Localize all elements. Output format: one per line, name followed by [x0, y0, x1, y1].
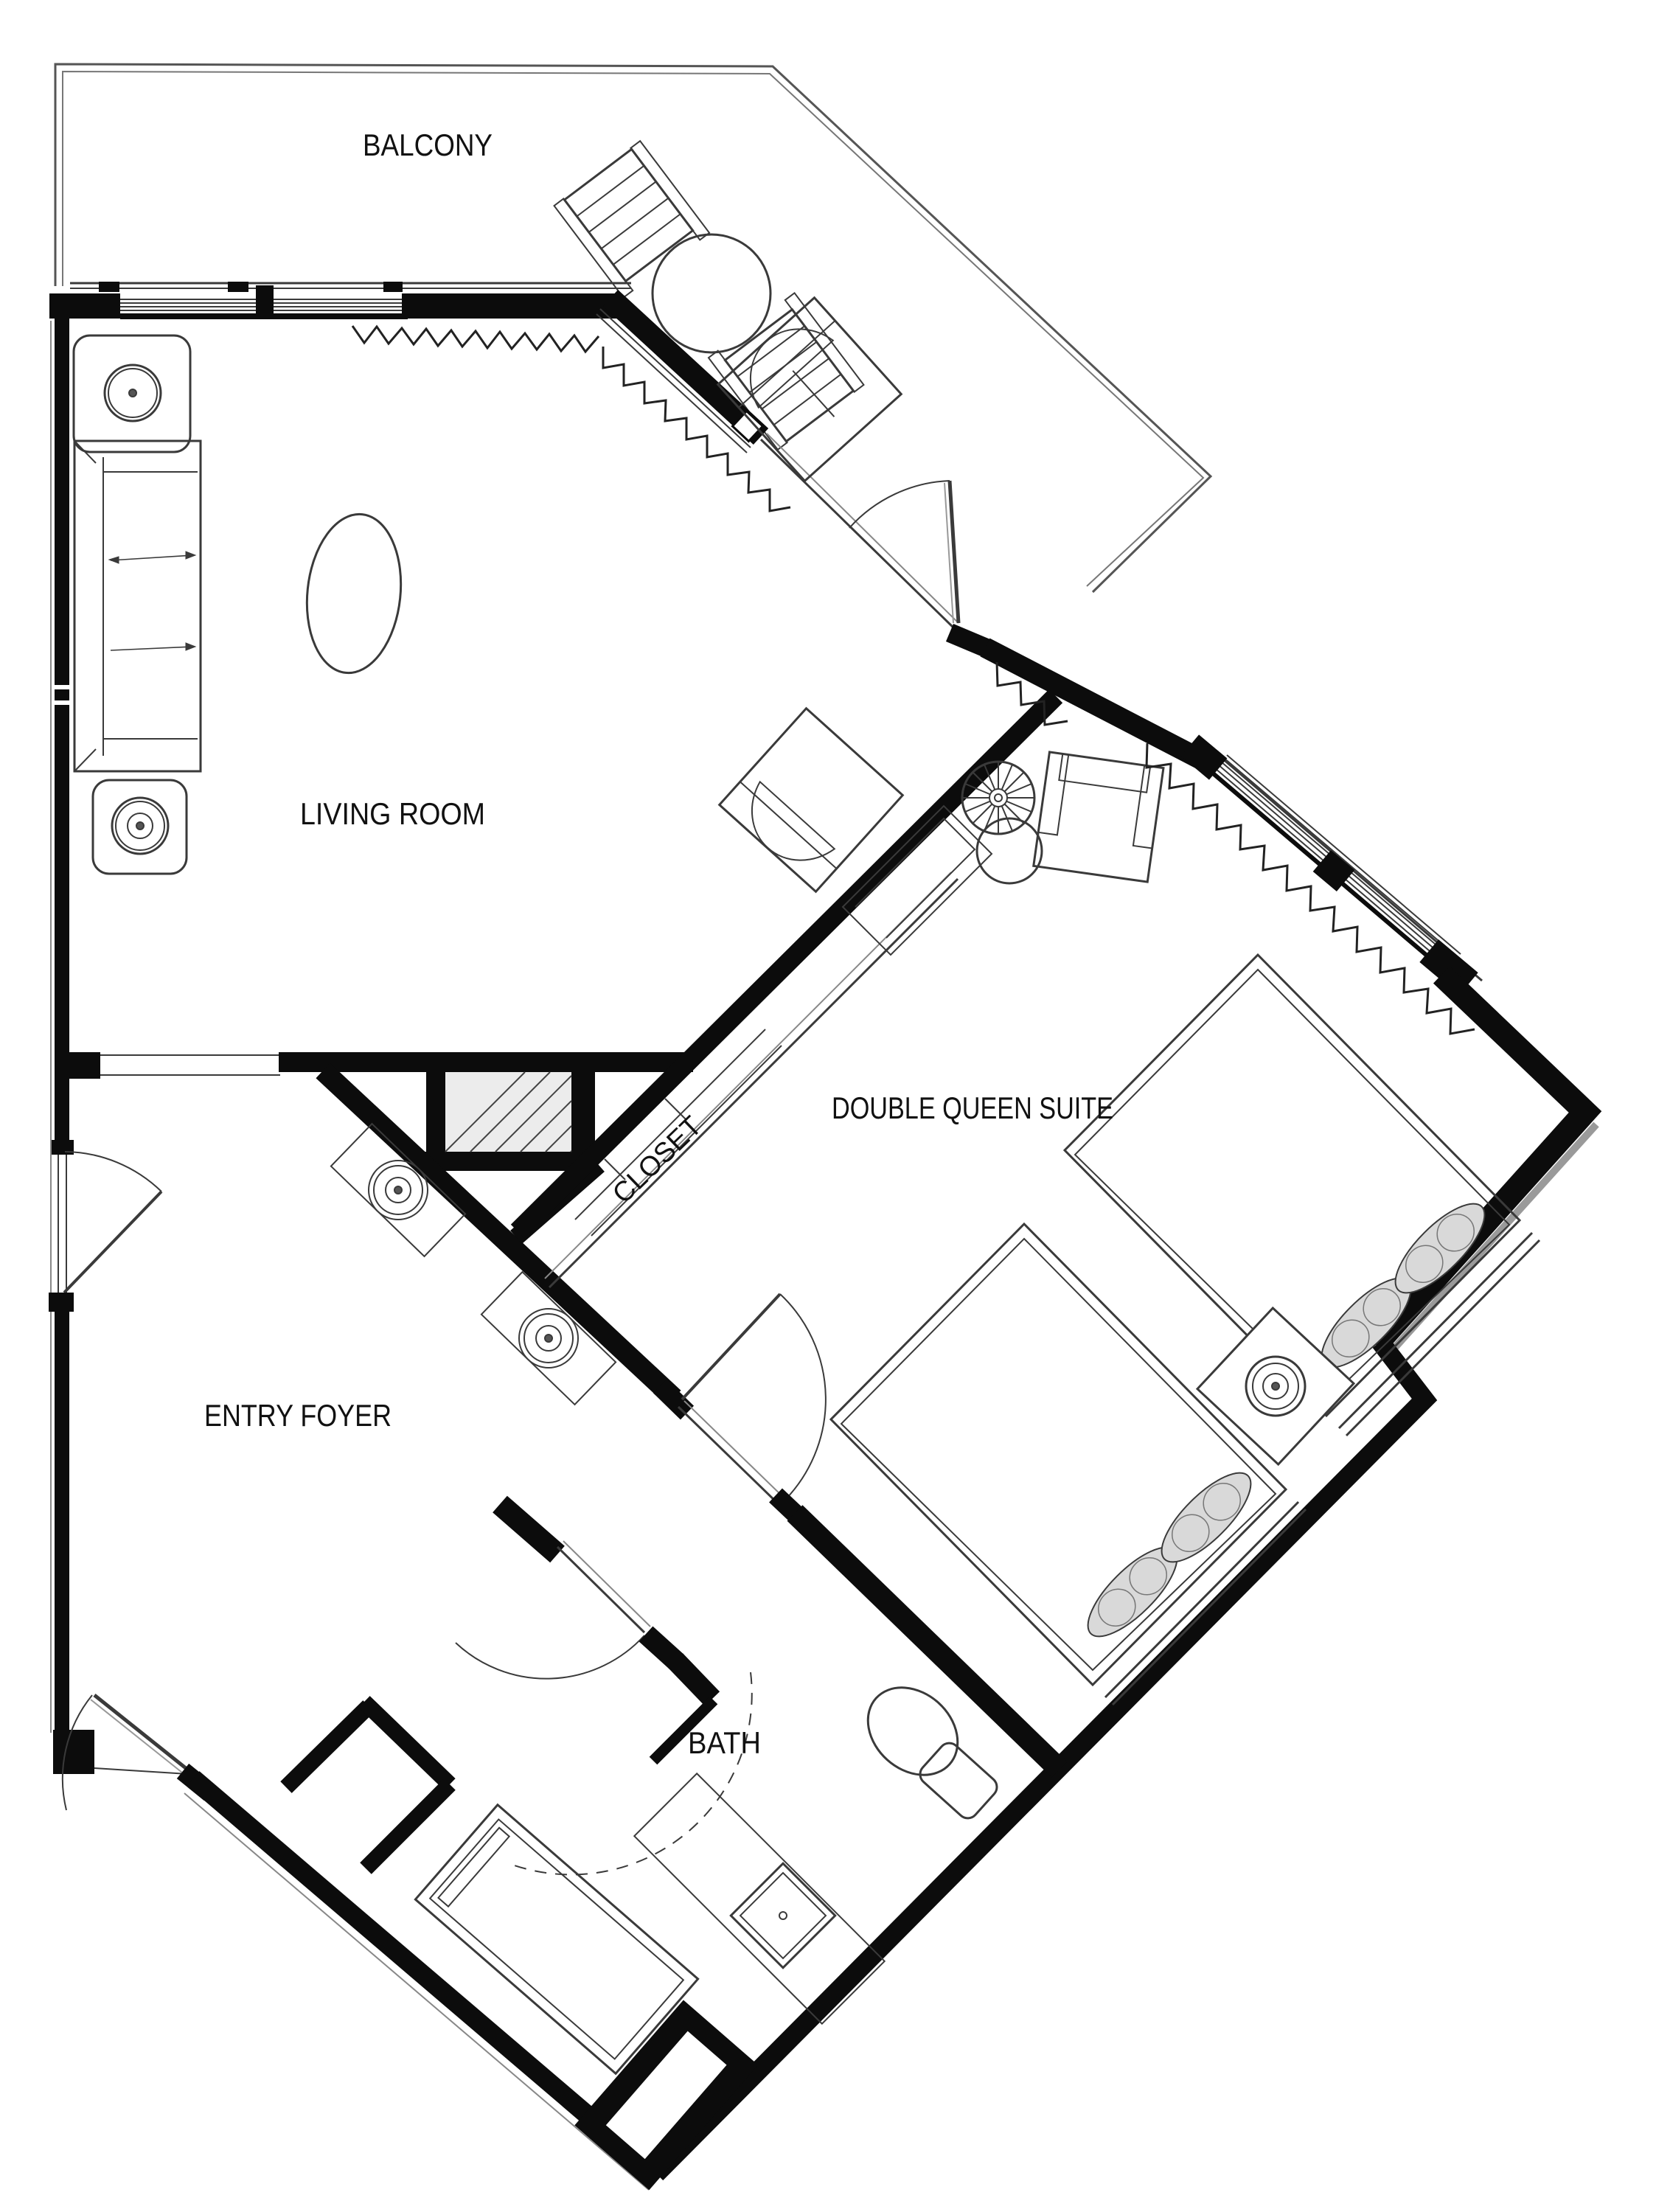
svg-text:BATH: BATH: [688, 1725, 761, 1760]
svg-text:ENTRY FOYER: ENTRY FOYER: [204, 1398, 392, 1433]
svg-text:BALCONY: BALCONY: [363, 128, 493, 162]
svg-text:LIVING ROOM: LIVING ROOM: [300, 796, 485, 831]
svg-text:DOUBLE QUEEN SUITE: DOUBLE QUEEN SUITE: [832, 1091, 1113, 1125]
